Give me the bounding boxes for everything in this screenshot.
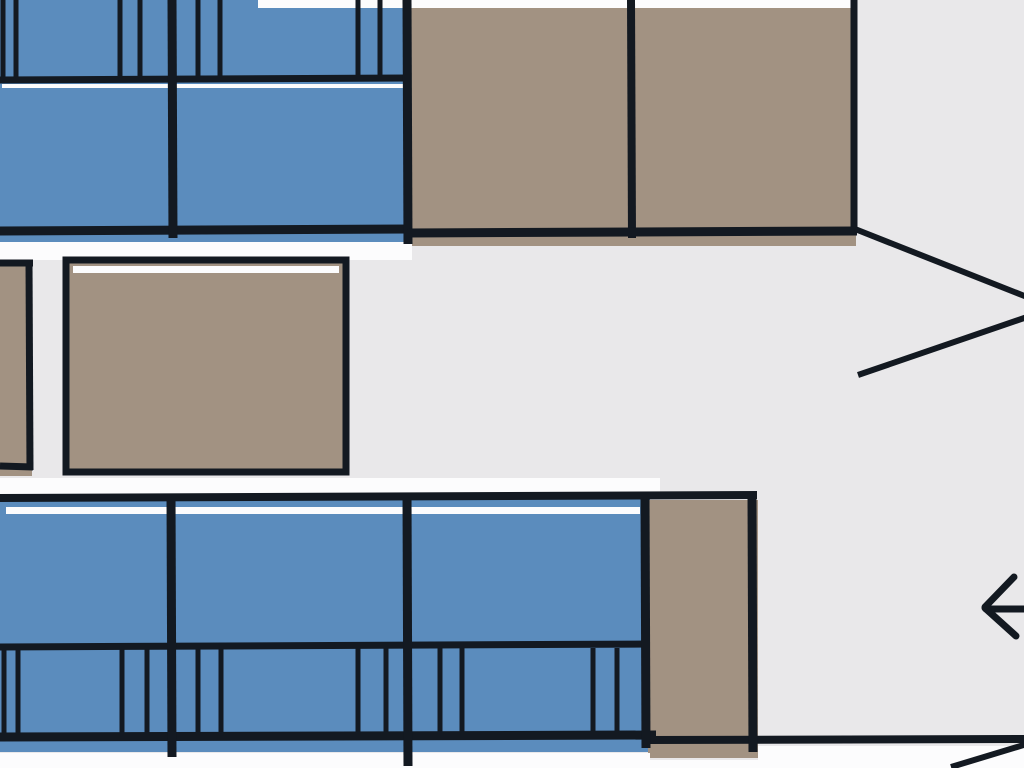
bottom-seat-divider-2 [407,496,408,766]
halo-top-edge [258,0,856,8]
nose-upper-diagonal [855,229,1024,297]
top-table-bottom-line [408,231,857,233]
bottom-table-right-edge [752,496,753,752]
table-mid-left [66,260,346,472]
bottom-seat-divider-1 [171,496,172,757]
counter-left-bottom-line [0,466,33,467]
table-mid-left-highlight [73,266,339,273]
halo-bottom-left [0,753,650,768]
counter-left-right-edge [29,261,30,470]
bottom-backrest-bottom-line [0,735,656,737]
diagram-canvas [0,0,1024,768]
top-cushion-bottom-line [0,229,410,231]
halo-under-bottom-table [650,760,760,768]
seat-bench-top-fill [0,0,408,246]
nose-lower-diagonal [858,317,1024,375]
top-seat-table-divider [407,0,408,244]
top-backrest-bottom-line [0,78,408,80]
direction-arrow-upper-arm [985,577,1014,607]
top-seat-divider [172,0,173,238]
bottom-seat-table-edge [645,496,646,748]
top-table-divider [631,0,632,238]
bottom-cushion-bottom-line [0,644,650,647]
seat-bench-bottom-fill [0,498,650,752]
seat-top-cushion-highlight [2,84,404,88]
seat-bottom-cushion-highlight [6,507,640,514]
table-bottom-fill [648,500,758,758]
bottom-wall-line [648,739,1024,740]
seat-map-figure [0,0,1024,768]
